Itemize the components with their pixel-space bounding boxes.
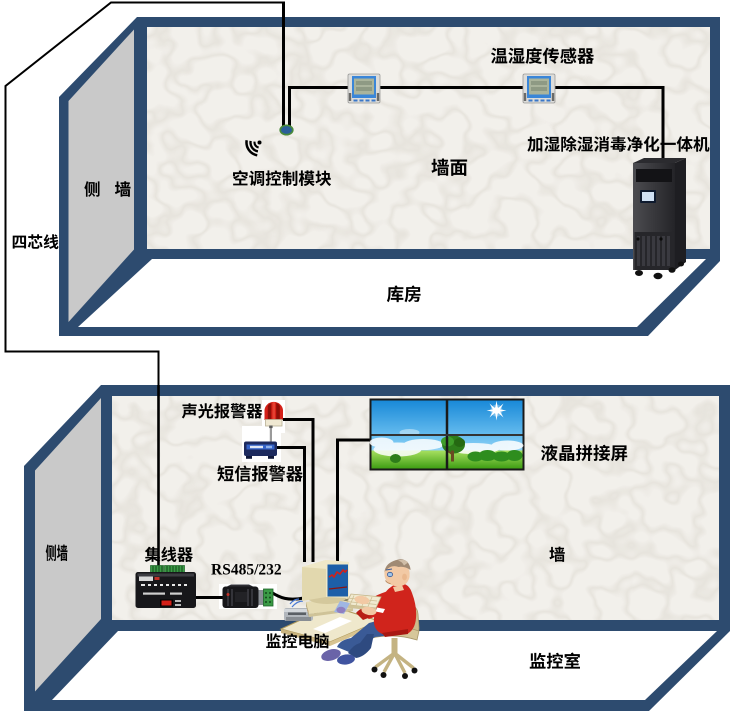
svg-text:RS485/232: RS485/232 [211, 562, 282, 579]
